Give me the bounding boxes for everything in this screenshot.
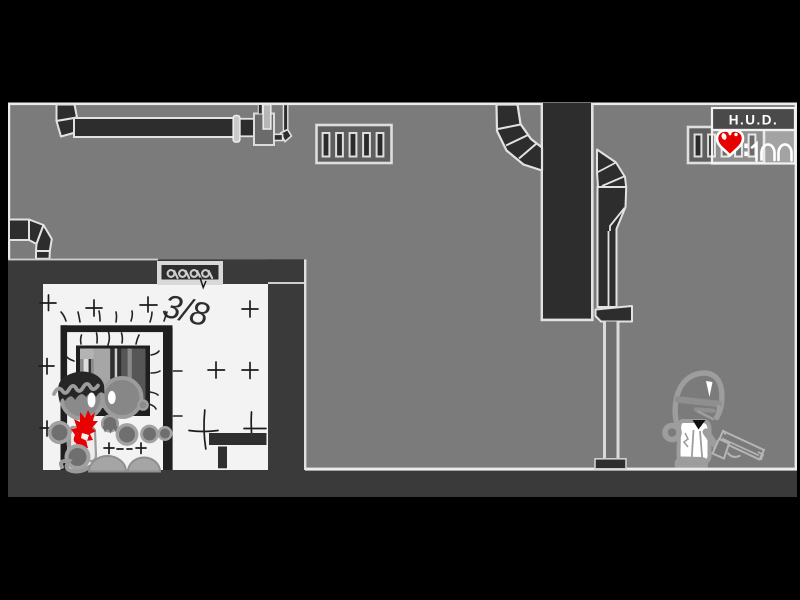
- svg-text:H.U.D.: H.U.D.: [729, 113, 779, 128]
